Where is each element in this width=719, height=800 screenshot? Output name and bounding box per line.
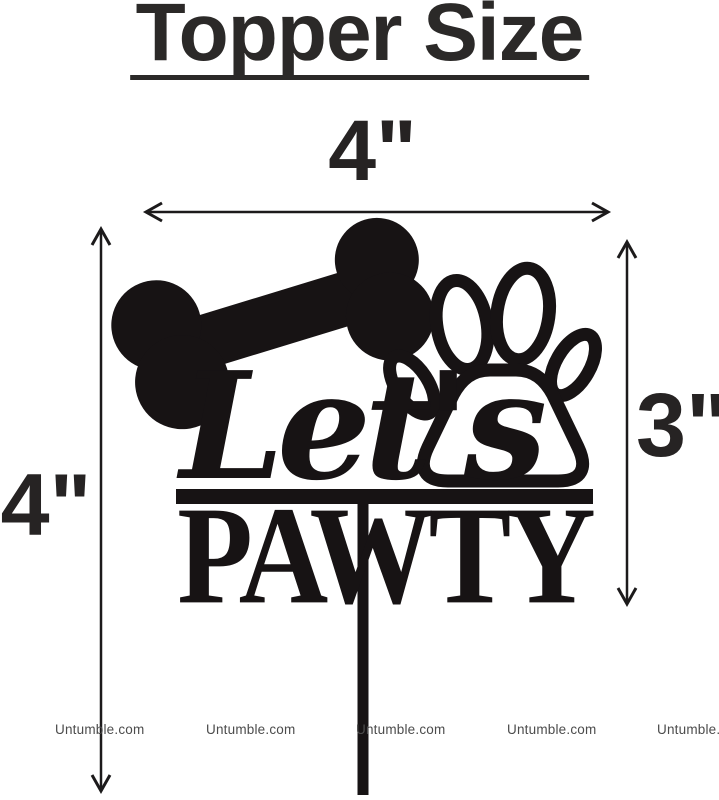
watermark: Untumble.com	[657, 722, 719, 737]
watermark: Untumble.com	[206, 722, 295, 737]
watermark: Untumble.com	[356, 722, 445, 737]
watermark: Untumble.com	[507, 722, 596, 737]
watermark: Untumble.com	[55, 722, 144, 737]
topper-size-diagram: Topper Size 4" 4" 3"	[0, 0, 719, 800]
right-height-arrow	[618, 242, 636, 604]
block-word: PAWTY	[172, 486, 596, 626]
left-height-arrow	[92, 229, 110, 791]
